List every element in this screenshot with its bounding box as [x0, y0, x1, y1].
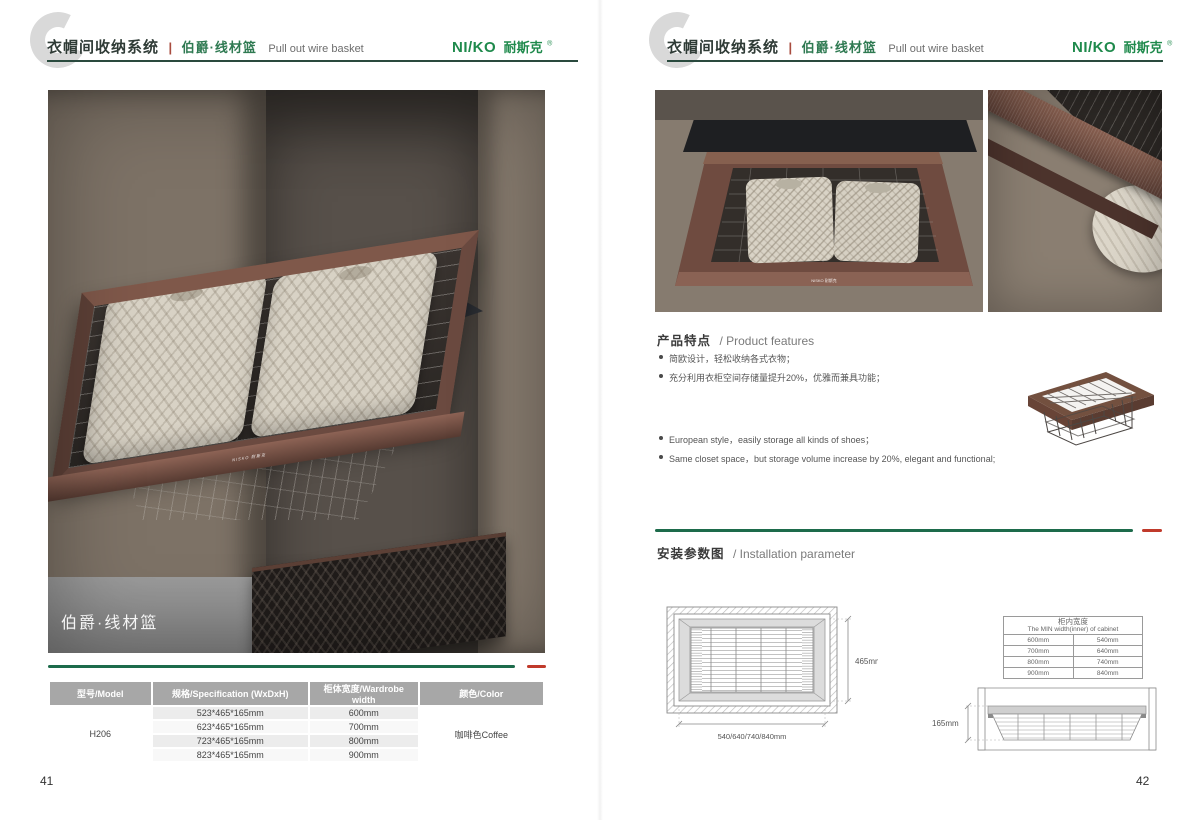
basket-render — [1008, 332, 1162, 462]
basket-top-illustration: NISKO 耐斯克 — [655, 90, 983, 312]
width-cell: 600mm — [310, 707, 418, 719]
spec-table-header-row: 型号/Model 规格/Specification (WxDxH) 柜体宽度/W… — [50, 682, 543, 705]
min-width-cell: 640mm — [1073, 646, 1143, 657]
rail-logo-text: NISKO 耐斯克 — [232, 452, 267, 464]
page-number: 41 — [40, 774, 53, 788]
spec-cell: 723*465*165mm — [153, 735, 308, 747]
wardrobe-width-cell: 900mm — [1004, 668, 1074, 679]
feature-item: Same closet space，but storage volume inc… — [657, 452, 995, 465]
height-dimension-label: 165mm — [932, 719, 959, 728]
col-color: 颜色/Color — [420, 682, 543, 705]
table-row: 600mm 540mm — [1004, 635, 1143, 646]
feature-text: 简欧设计，轻松收纳各式衣物； — [669, 352, 795, 365]
width-dimension-label: 540/640/740/840mm — [718, 732, 787, 741]
header-divider: | — [168, 40, 172, 55]
bullet-icon — [659, 455, 663, 459]
features-list-zh: 简欧设计，轻松收纳各式衣物； 充分利用衣柜空间存储量提升20%，优雅而兼具功能； — [657, 352, 885, 390]
table-row: 900mm 840mm — [1004, 668, 1143, 679]
width-cell: 900mm — [310, 749, 418, 761]
header-subtitle: 伯爵·线材篮 — [802, 40, 877, 55]
basket-render-illustration — [1008, 332, 1162, 462]
nisko-logo-cjk: 耐斯克 — [1124, 40, 1163, 55]
table-row: 700mm 640mm — [1004, 646, 1143, 657]
spec-table: 型号/Model 规格/Specification (WxDxH) 柜体宽度/W… — [48, 680, 545, 763]
installation-heading-zh: 安装参数图 — [657, 547, 725, 561]
features-heading-zh: 产品特点 — [657, 334, 711, 348]
header-subtitle-en: Pull out wire basket — [888, 43, 983, 55]
min-width-header-row: 柜内宽度 The MIN width(inner) of cabinet — [1004, 617, 1143, 635]
feature-text: 充分利用衣柜空间存储量提升20%，优雅而兼具功能； — [669, 371, 885, 384]
depth-dimension-label: 465mm — [855, 657, 878, 666]
wardrobe-width-cell: 700mm — [1004, 646, 1074, 657]
page-header-left: 衣帽间收纳系统 | 伯爵·线材篮 Pull out wire basket — [47, 36, 364, 57]
table-row: H206 523*465*165mm 600mm 咖啡色Coffee — [50, 707, 543, 719]
wardrobe-width-cell: 800mm — [1004, 657, 1074, 668]
top-view-diagram: 465mm 540/640/740/840mm — [666, 606, 878, 748]
nisko-logo-latin: NI/KO — [452, 39, 496, 56]
bullet-icon — [659, 436, 663, 440]
separator-green — [655, 529, 1133, 532]
feature-text: Same closet space，but storage volume inc… — [669, 452, 995, 465]
feature-item: 充分利用衣柜空间存储量提升20%，优雅而兼具功能； — [657, 371, 885, 384]
header-title: 衣帽间收纳系统 — [47, 39, 159, 56]
registered-mark-icon: ® — [547, 41, 552, 48]
feature-item: European style，easily storage all kinds … — [657, 433, 995, 446]
min-width-cell: 840mm — [1073, 668, 1143, 679]
min-width-cell: 540mm — [1073, 635, 1143, 646]
main-product-photo: NISKO 耐斯克 伯爵·线材篮 — [48, 90, 545, 653]
header-rule — [667, 60, 1163, 62]
width-cell: 700mm — [310, 721, 418, 733]
width-cell: 800mm — [310, 735, 418, 747]
wardrobe-width-cell: 600mm — [1004, 635, 1074, 646]
page-header-right: 衣帽间收纳系统 | 伯爵·线材篮 Pull out wire basket — [667, 36, 984, 57]
bullet-icon — [659, 374, 663, 378]
color-cell: 咖啡色Coffee — [420, 707, 543, 761]
spec-cell: 823*465*165mm — [153, 749, 308, 761]
header-subtitle: 伯爵·线材篮 — [182, 40, 257, 55]
rail-logo-text: NISKO 耐斯克 — [811, 277, 837, 283]
separator-red — [527, 665, 546, 668]
installation-heading-en: / Installation parameter — [733, 547, 855, 561]
min-width-table: 柜内宽度 The MIN width(inner) of cabinet 600… — [1003, 616, 1143, 679]
min-width-title: 柜内宽度 The MIN width(inner) of cabinet — [1004, 617, 1143, 635]
bullet-icon — [659, 355, 663, 359]
spec-cell: 623*465*165mm — [153, 721, 308, 733]
nisko-logo: NI/KO 耐斯克 ® — [1072, 37, 1172, 57]
header-rule — [47, 60, 578, 62]
features-list-en: European style，easily storage all kinds … — [657, 433, 995, 471]
spec-cell: 523*465*165mm — [153, 707, 308, 719]
registered-mark-icon: ® — [1167, 41, 1172, 48]
header-title: 衣帽间收纳系统 — [667, 39, 779, 56]
header-divider: | — [788, 40, 792, 55]
separator-red — [1142, 529, 1162, 532]
features-heading-en: / Product features — [719, 334, 814, 348]
page-number: 42 — [1136, 774, 1149, 788]
col-width: 柜体宽度/Wardrobe width — [310, 682, 418, 705]
catalog-spread: 衣帽间收纳系统 | 伯爵·线材篮 Pull out wire basket NI… — [0, 0, 1200, 820]
feature-text: European style，easily storage all kinds … — [669, 433, 874, 446]
photo-vignette — [988, 90, 1162, 312]
min-width-title-en: The MIN width(inner) of cabinet — [1004, 626, 1142, 634]
min-width-cell: 740mm — [1073, 657, 1143, 668]
interior-shadow — [655, 90, 983, 120]
separator-green — [48, 665, 515, 668]
model-cell: H206 — [50, 707, 151, 761]
installation-heading: 安装参数图 / Installation parameter — [657, 543, 855, 563]
frame-corner-photo — [988, 90, 1162, 312]
page-gutter — [597, 0, 603, 820]
nisko-logo-cjk: 耐斯克 — [504, 40, 543, 55]
photo-caption: 伯爵·线材篮 — [61, 609, 158, 633]
col-model: 型号/Model — [50, 682, 151, 705]
nisko-logo: NI/KO 耐斯克 ® — [452, 37, 552, 57]
feature-item: 简欧设计，轻松收纳各式衣物； — [657, 352, 885, 365]
nisko-logo-latin: NI/KO — [1072, 39, 1116, 56]
table-row: 800mm 740mm — [1004, 657, 1143, 668]
col-spec: 规格/Specification (WxDxH) — [153, 682, 308, 705]
features-heading: 产品特点 / Product features — [657, 330, 814, 350]
min-width-title-zh: 柜内宽度 — [1004, 617, 1142, 626]
header-subtitle-en: Pull out wire basket — [268, 43, 363, 55]
basket-top-photo: NISKO 耐斯克 — [655, 90, 983, 312]
front-view-diagram: 165mm — [930, 684, 1164, 764]
